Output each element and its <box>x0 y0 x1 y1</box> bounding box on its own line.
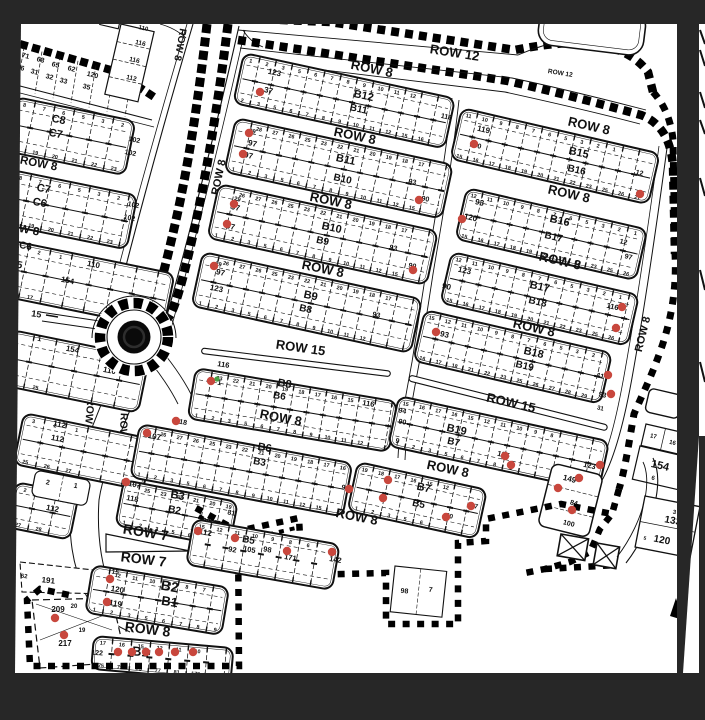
svg-text:27: 27 <box>65 468 72 475</box>
svg-text:17: 17 <box>401 228 408 235</box>
svg-text:10: 10 <box>377 86 384 93</box>
svg-text:18: 18 <box>368 292 375 299</box>
svg-text:27: 27 <box>176 435 183 442</box>
svg-text:19: 19 <box>290 456 297 463</box>
svg-text:17: 17 <box>394 474 401 481</box>
svg-text:17: 17 <box>100 641 107 648</box>
svg-text:17: 17 <box>385 296 392 303</box>
svg-text:20: 20 <box>209 501 216 508</box>
svg-text:16: 16 <box>418 405 425 412</box>
svg-text:98: 98 <box>400 588 409 596</box>
svg-text:23: 23 <box>110 166 117 173</box>
svg-text:B6: B6 <box>272 390 287 403</box>
svg-text:15: 15 <box>467 415 474 422</box>
svg-text:12: 12 <box>392 202 399 209</box>
svg-text:17: 17 <box>314 392 321 399</box>
svg-text:15: 15 <box>401 133 408 140</box>
svg-text:11: 11 <box>340 437 347 444</box>
svg-text:23: 23 <box>287 275 294 282</box>
svg-text:25: 25 <box>209 441 216 448</box>
svg-text:22: 22 <box>336 144 343 151</box>
svg-text:12: 12 <box>442 485 449 492</box>
svg-text:26: 26 <box>192 438 199 445</box>
svg-text:11: 11 <box>500 422 507 429</box>
svg-text:16: 16 <box>410 478 417 485</box>
svg-text:19: 19 <box>79 628 86 634</box>
svg-text:25: 25 <box>271 271 278 278</box>
svg-text:191: 191 <box>41 575 56 585</box>
svg-text:21: 21 <box>320 282 327 289</box>
svg-text:B5: B5 <box>241 534 256 547</box>
svg-text:98: 98 <box>263 544 273 554</box>
svg-text:20: 20 <box>265 384 272 391</box>
svg-text:25: 25 <box>304 137 311 144</box>
svg-text:10: 10 <box>516 426 523 433</box>
svg-text:25: 25 <box>32 385 39 392</box>
svg-text:22: 22 <box>90 162 97 169</box>
svg-text:20: 20 <box>274 453 281 460</box>
svg-text:21: 21 <box>192 498 199 505</box>
svg-text:25: 25 <box>287 203 294 210</box>
svg-text:81: 81 <box>227 509 236 517</box>
svg-text:10: 10 <box>326 329 333 336</box>
svg-text:26: 26 <box>255 268 262 275</box>
svg-text:16: 16 <box>339 465 346 472</box>
svg-text:17: 17 <box>26 294 33 301</box>
svg-text:62: 62 <box>20 574 28 581</box>
svg-text:22: 22 <box>86 235 93 242</box>
svg-text:12: 12 <box>375 268 382 275</box>
svg-text:23: 23 <box>160 491 167 498</box>
svg-text:122: 122 <box>91 650 103 658</box>
svg-text:18: 18 <box>307 459 314 466</box>
svg-text:15: 15 <box>315 505 322 512</box>
svg-text:12: 12 <box>216 527 223 534</box>
svg-text:25: 25 <box>144 488 151 495</box>
svg-text:28: 28 <box>255 127 262 134</box>
svg-text:27: 27 <box>255 196 262 203</box>
svg-text:19: 19 <box>368 221 375 228</box>
svg-text:92: 92 <box>228 544 238 554</box>
svg-text:20: 20 <box>336 285 343 292</box>
svg-text:10: 10 <box>266 496 273 503</box>
svg-text:18: 18 <box>384 224 391 231</box>
svg-text:12: 12 <box>357 440 364 447</box>
svg-text:17: 17 <box>418 162 425 169</box>
svg-text:12: 12 <box>299 502 306 509</box>
svg-text:26: 26 <box>288 134 295 141</box>
svg-text:21: 21 <box>71 158 78 165</box>
svg-text:12: 12 <box>483 419 490 426</box>
svg-text:18: 18 <box>298 389 305 396</box>
svg-text:18: 18 <box>401 158 408 165</box>
svg-text:21: 21 <box>249 381 256 388</box>
svg-text:23: 23 <box>320 141 327 148</box>
svg-text:28: 28 <box>35 526 42 533</box>
svg-text:22: 22 <box>241 447 248 454</box>
svg-text:11: 11 <box>132 576 139 583</box>
svg-text:21: 21 <box>336 214 343 221</box>
svg-text:16: 16 <box>331 395 338 402</box>
svg-text:22: 22 <box>303 278 310 285</box>
svg-text:23: 23 <box>303 207 310 214</box>
svg-text:19: 19 <box>352 289 359 296</box>
svg-text:20: 20 <box>352 217 359 224</box>
svg-text:15: 15 <box>391 271 398 278</box>
svg-text:10: 10 <box>324 435 331 442</box>
svg-text:11: 11 <box>283 499 290 506</box>
svg-text:22: 22 <box>319 210 326 217</box>
svg-text:25: 25 <box>22 459 29 466</box>
svg-text:209: 209 <box>51 605 65 614</box>
svg-text:B1: B1 <box>160 593 179 611</box>
svg-text:75: 75 <box>98 663 105 670</box>
svg-text:26: 26 <box>222 261 229 268</box>
svg-text:15: 15 <box>402 401 409 408</box>
svg-text:17: 17 <box>323 462 330 469</box>
svg-text:B6: B6 <box>257 441 273 455</box>
svg-text:10: 10 <box>149 579 156 586</box>
svg-text:21: 21 <box>67 231 74 238</box>
svg-text:27: 27 <box>239 264 246 271</box>
svg-text:217: 217 <box>58 639 72 648</box>
svg-text:16: 16 <box>451 412 458 419</box>
svg-text:B8: B8 <box>277 377 293 391</box>
svg-text:10: 10 <box>359 195 366 202</box>
svg-text:19: 19 <box>385 155 392 162</box>
svg-text:26: 26 <box>43 464 50 471</box>
svg-text:15: 15 <box>408 205 415 212</box>
svg-text:16: 16 <box>417 136 424 143</box>
svg-text:26: 26 <box>271 200 278 207</box>
svg-text:15: 15 <box>347 397 354 404</box>
svg-text:22: 22 <box>232 378 239 385</box>
svg-text:12: 12 <box>359 336 366 343</box>
svg-text:23: 23 <box>106 239 113 246</box>
svg-text:20: 20 <box>71 604 78 610</box>
svg-text:20: 20 <box>369 151 376 158</box>
svg-text:16: 16 <box>119 642 126 649</box>
svg-text:18: 18 <box>377 471 384 478</box>
svg-text:12: 12 <box>409 93 416 100</box>
svg-text:17: 17 <box>435 408 442 415</box>
svg-text:27: 27 <box>272 130 279 137</box>
svg-text:12: 12 <box>385 129 392 136</box>
svg-text:15: 15 <box>31 308 42 319</box>
svg-text:20: 20 <box>47 227 54 234</box>
svg-text:19: 19 <box>361 467 368 474</box>
svg-text:21: 21 <box>353 148 360 155</box>
svg-text:23: 23 <box>225 444 232 451</box>
